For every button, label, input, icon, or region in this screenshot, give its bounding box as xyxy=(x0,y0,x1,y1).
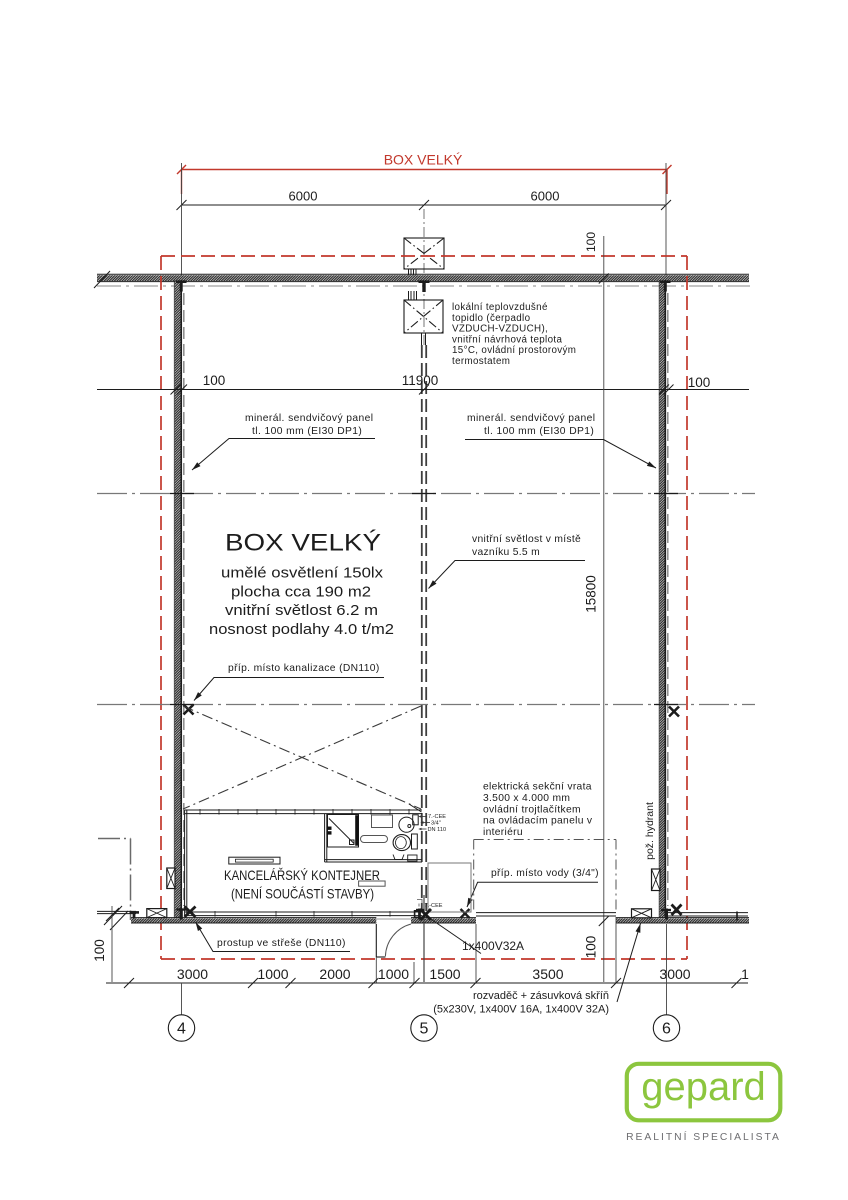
svg-text:2000: 2000 xyxy=(319,966,350,982)
svg-text:DN 110: DN 110 xyxy=(428,827,447,833)
svg-text:rozvaděč + zásuvková skříň: rozvaděč + zásuvková skříň xyxy=(473,990,609,1002)
svg-text:100: 100 xyxy=(203,373,226,388)
svg-text:1500: 1500 xyxy=(429,966,460,982)
svg-text:pož. hydrant: pož. hydrant xyxy=(644,802,656,860)
svg-text:3000: 3000 xyxy=(659,966,690,982)
svg-text:vnitřní světlost 6.2 m: vnitřní světlost 6.2 m xyxy=(225,602,378,619)
svg-text:(NENÍ SOUČÁSTÍ STAVBY): (NENÍ SOUČÁSTÍ STAVBY) xyxy=(231,886,374,902)
svg-text:příp. místo kanalizace (DN110): příp. místo kanalizace (DN110) xyxy=(228,663,380,674)
svg-text:1x400V32A: 1x400V32A xyxy=(462,939,524,953)
svg-text:100: 100 xyxy=(688,375,711,390)
svg-text:prostup ve střeše (DN110): prostup ve střeše (DN110) xyxy=(217,938,346,949)
svg-text:3000: 3000 xyxy=(177,966,208,982)
svg-text:7.-CEE: 7.-CEE xyxy=(428,814,446,820)
svg-text:7.-CEE: 7.-CEE xyxy=(425,903,443,909)
svg-text:6: 6 xyxy=(662,1021,671,1038)
svg-text:1000: 1000 xyxy=(378,966,409,982)
svg-text:100: 100 xyxy=(92,939,107,962)
svg-text:umělé osvětlení 150lx: umělé osvětlení 150lx xyxy=(221,565,384,582)
svg-text:4: 4 xyxy=(177,1021,186,1038)
svg-text:(5x230V, 1x400V 16A, 1x400V 32: (5x230V, 1x400V 16A, 1x400V 32A) xyxy=(433,1004,609,1016)
svg-text:1: 1 xyxy=(741,966,749,982)
svg-text:6000: 6000 xyxy=(289,189,318,204)
svg-text:příp. místo vody (3/4"): příp. místo vody (3/4") xyxy=(491,868,599,879)
svg-text:gepard: gepard xyxy=(641,1065,766,1109)
svg-text:REALITNÍ SPECIALISTA: REALITNÍ SPECIALISTA xyxy=(626,1130,781,1143)
svg-text:nosnost podlahy 4.0 t/m2: nosnost podlahy 4.0 t/m2 xyxy=(209,621,394,638)
svg-text:100: 100 xyxy=(584,936,599,959)
svg-text:6000: 6000 xyxy=(531,189,560,204)
svg-text:3/4": 3/4" xyxy=(431,821,441,827)
svg-text:BOX VELKÝ: BOX VELKÝ xyxy=(225,530,381,557)
svg-text:KANCELÁŘSKÝ KONTEJNER: KANCELÁŘSKÝ KONTEJNER xyxy=(224,867,380,883)
svg-text:3500: 3500 xyxy=(532,966,563,982)
svg-text:BOX VELKÝ: BOX VELKÝ xyxy=(384,152,463,168)
svg-text:1000: 1000 xyxy=(257,966,288,982)
svg-text:100: 100 xyxy=(584,232,598,252)
svg-text:15800: 15800 xyxy=(584,575,599,613)
svg-text:11900: 11900 xyxy=(402,373,439,388)
svg-text:5: 5 xyxy=(420,1021,429,1038)
svg-text:plocha cca 190 m2: plocha cca 190 m2 xyxy=(231,584,371,601)
